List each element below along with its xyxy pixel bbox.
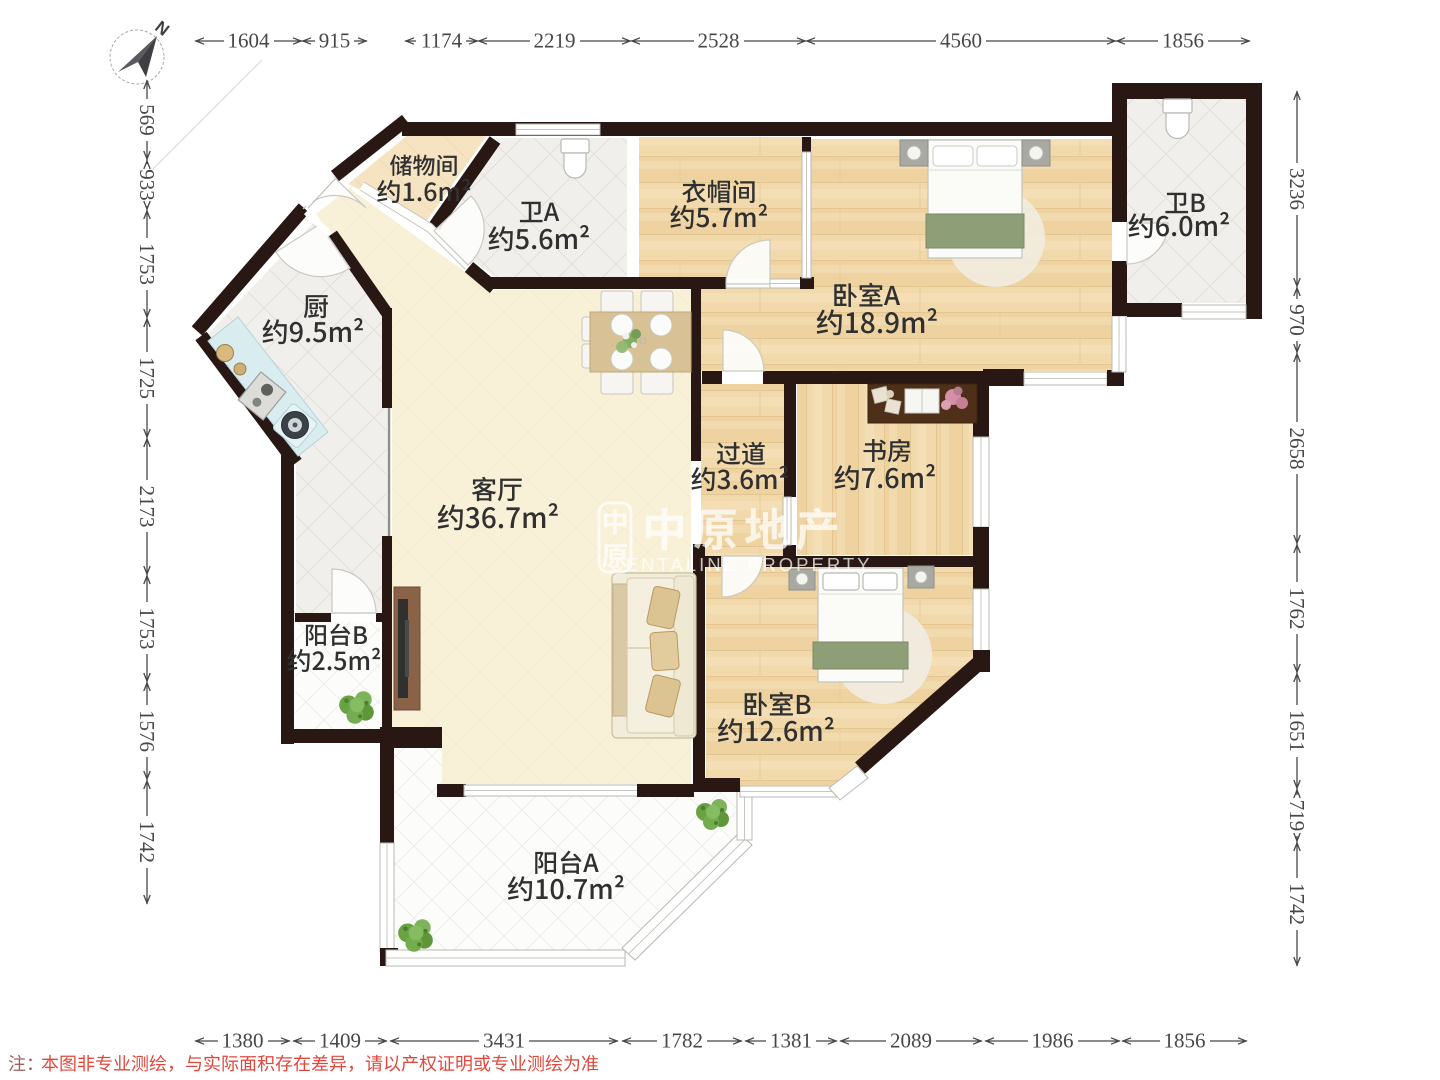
- svg-text:569: 569: [135, 104, 159, 136]
- svg-text:3431: 3431: [483, 1029, 525, 1053]
- svg-text:1409: 1409: [319, 1029, 361, 1053]
- svg-text:1856: 1856: [1162, 29, 1204, 53]
- svg-text:1380: 1380: [222, 1029, 264, 1053]
- svg-text:1725: 1725: [135, 357, 159, 399]
- svg-text:1742: 1742: [135, 821, 159, 863]
- svg-text:1762: 1762: [1285, 588, 1309, 630]
- svg-text:2219: 2219: [534, 29, 576, 53]
- svg-text:1856: 1856: [1164, 1029, 1206, 1053]
- svg-text:1742: 1742: [1285, 883, 1309, 925]
- svg-text:2528: 2528: [698, 29, 740, 53]
- svg-text:2173: 2173: [135, 486, 159, 528]
- svg-text:1381: 1381: [770, 1029, 812, 1053]
- svg-text:1986: 1986: [1032, 1029, 1074, 1053]
- svg-text:2089: 2089: [890, 1029, 932, 1053]
- svg-text:1753: 1753: [135, 608, 159, 650]
- svg-text:1651: 1651: [1285, 710, 1309, 752]
- svg-text:970: 970: [1285, 304, 1309, 336]
- svg-text:1753: 1753: [135, 243, 159, 285]
- svg-text:915: 915: [319, 29, 351, 53]
- svg-text:3236: 3236: [1285, 168, 1309, 210]
- svg-text:1782: 1782: [661, 1029, 703, 1053]
- svg-text:CENTALINE PROPERTY: CENTALINE PROPERTY: [609, 554, 872, 575]
- svg-text:2658: 2658: [1285, 428, 1309, 470]
- svg-text:1174: 1174: [421, 29, 463, 53]
- svg-text:719: 719: [1285, 800, 1309, 832]
- svg-text:1576: 1576: [135, 710, 159, 752]
- svg-text:1604: 1604: [228, 29, 271, 53]
- svg-text:933: 933: [135, 169, 159, 201]
- svg-text:4560: 4560: [940, 29, 982, 53]
